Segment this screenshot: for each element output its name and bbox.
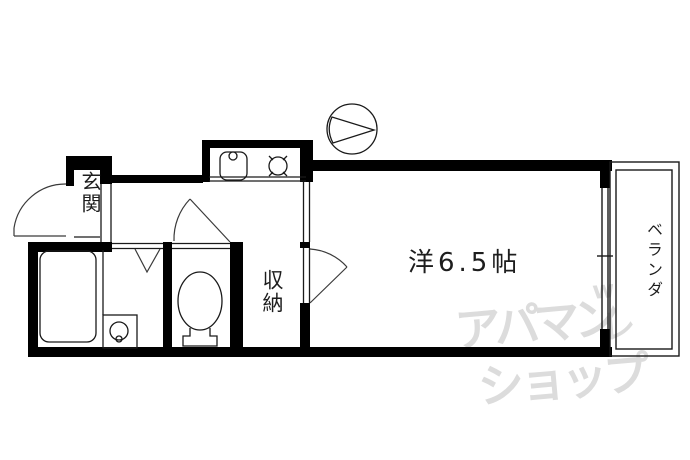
room-label-storage: 収納 [257,269,287,315]
ventilation-fan-icon [327,104,377,154]
wall-balcony-post-bottom [600,329,610,357]
storage-door-swing [310,249,347,303]
stove-burner-icon [269,156,287,176]
wall-washroom-toilet [163,242,172,348]
wall-kitchen-top [202,140,313,148]
room-label-entrance: 玄関 [76,171,105,215]
toilet-icon [178,272,222,346]
kitchen-sink-icon [220,152,247,180]
main-room-entry-opening [304,182,310,242]
bathroom-door-sill [112,244,163,249]
floor-plan-drawing [0,0,690,460]
toilet-door-sill [172,244,230,249]
wall-main-top [302,160,612,171]
bathroom-folding-door-icon [135,249,160,272]
washbasin-icon [103,315,137,348]
toilet-door-swing [174,199,230,242]
room-label-main-room: 洋6.5帖 [408,242,521,279]
wall-outer-left [28,242,38,357]
wall-balcony-post-top [600,160,610,188]
floor-plan: アパマン w レ ショップ [0,0,690,460]
room-label-balcony: ベランダ [641,221,665,301]
wall-toilet-storage [230,242,243,348]
storage-door-jamb [304,248,310,303]
entrance-door-swing [14,184,66,236]
bathtub-icon [40,251,96,342]
wall-entrance-left [66,156,74,186]
wall-corridor-top [107,175,203,183]
wall-kitchen-left [202,140,210,182]
wall-main-left-lower [300,303,310,351]
wall-stub-storage-top [300,242,310,248]
